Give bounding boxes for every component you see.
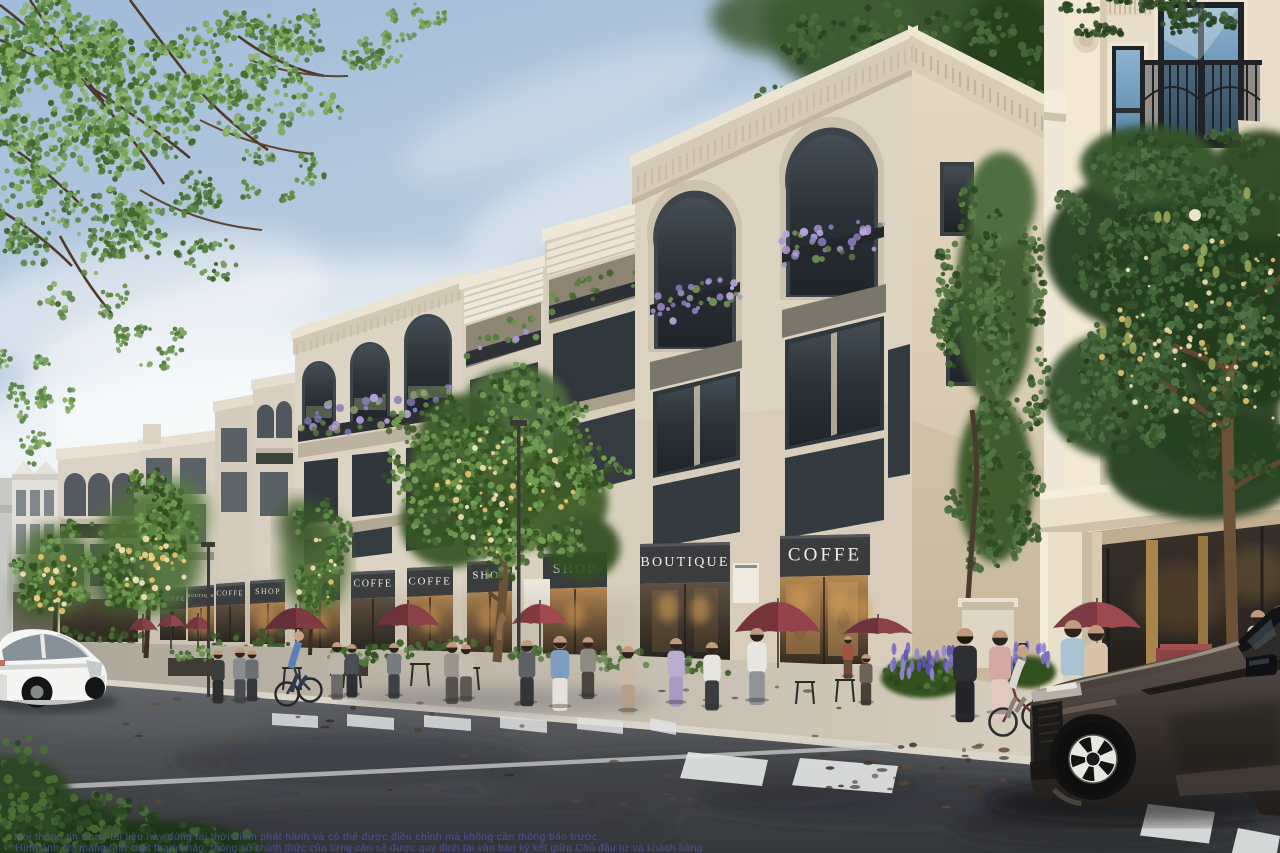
svg-text:COFFE: COFFE xyxy=(408,576,451,588)
svg-text:COFFE: COFFE xyxy=(353,578,392,589)
svg-text:COFFE: COFFE xyxy=(788,544,862,565)
svg-text:BOUTIQUE: BOUTIQUE xyxy=(640,555,729,570)
